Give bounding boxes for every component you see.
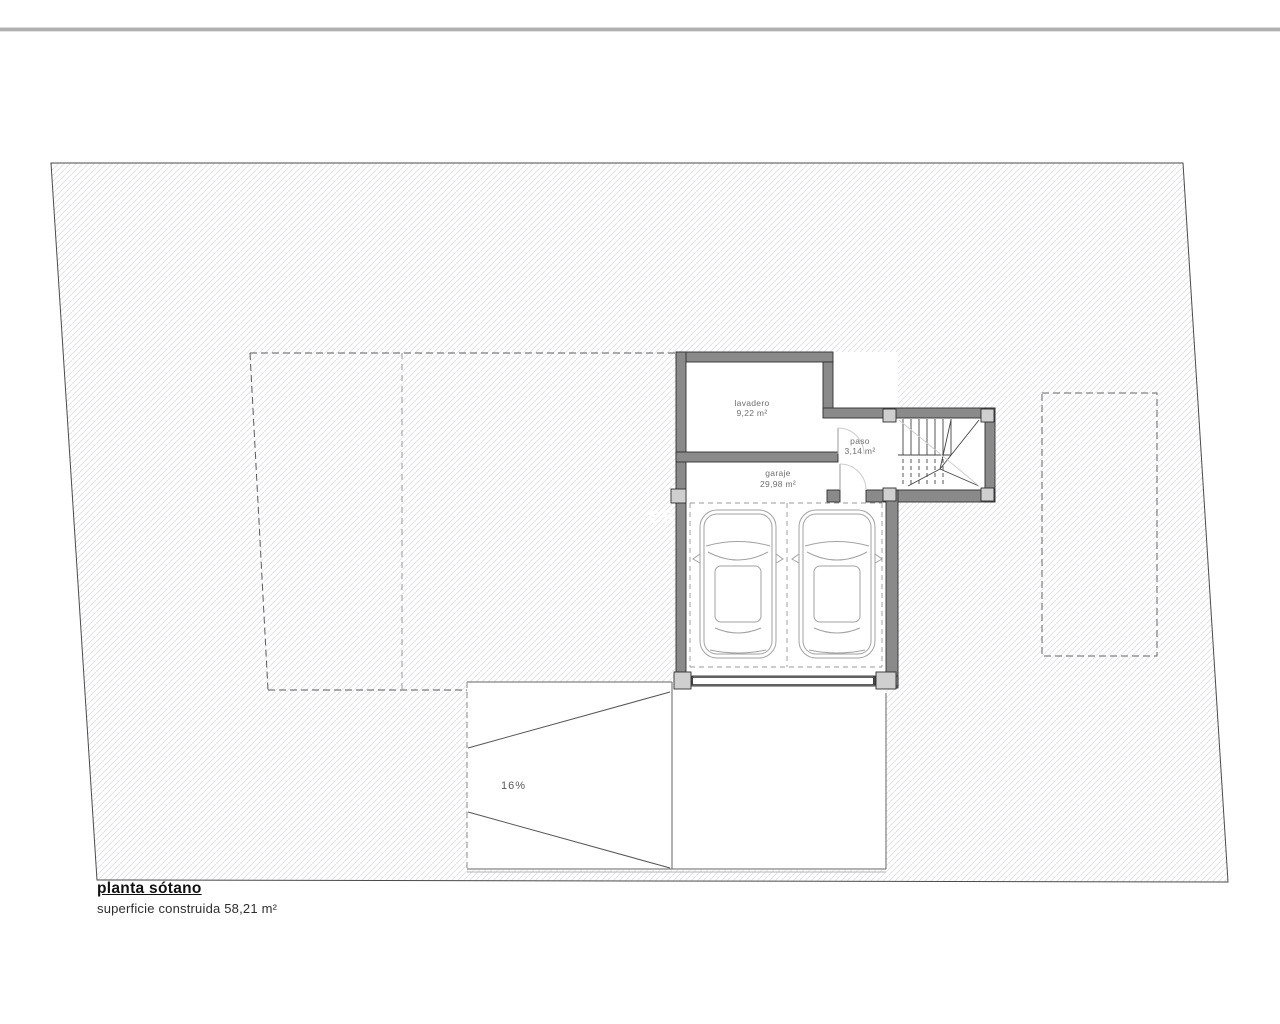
room-label-garaje: garaje	[765, 468, 790, 478]
floor-plan-canvas: 16%	[0, 0, 1280, 1024]
room-area-garaje: 29,98 m²	[760, 479, 796, 489]
plan-title: planta sótano	[97, 880, 277, 898]
title-block: planta sótano superficie construida 58,2…	[97, 880, 277, 916]
garage-door	[689, 676, 877, 685]
plan-subtitle: superficie construida 58,21 m²	[97, 901, 277, 916]
room-label-paso: paso	[850, 436, 870, 446]
top-rule	[0, 27, 1280, 32]
drawing-page: 16%	[0, 0, 1280, 1024]
room-label-lavadero: lavadero	[734, 398, 769, 408]
car-right	[792, 510, 882, 658]
room-area-lavadero: 9,22 m²	[737, 408, 768, 418]
watermark-text: es	[648, 502, 674, 528]
car-left	[693, 510, 783, 658]
ramp-slope-label: 16%	[501, 780, 526, 792]
room-area-paso: 3,14 m²	[845, 446, 876, 456]
